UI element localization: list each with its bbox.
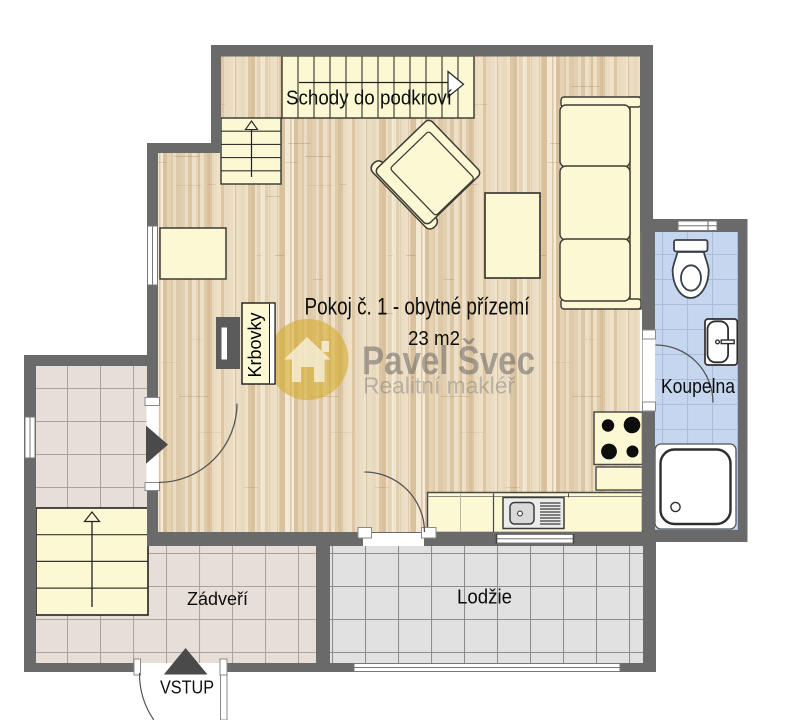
svg-text:Koupelna: Koupelna [661, 376, 736, 398]
svg-text:23 m2: 23 m2 [408, 328, 460, 350]
svg-text:Realitní makléř: Realitní makléř [363, 373, 516, 399]
svg-text:Krbovky: Krbovky [245, 312, 265, 377]
svg-text:Zádveří: Zádveří [187, 588, 249, 609]
svg-text:Pokoj č. 1 - obytné přízemí: Pokoj č. 1 - obytné přízemí [305, 294, 530, 321]
svg-text:Lodžie: Lodžie [457, 587, 512, 609]
svg-text:Schody do podkroví: Schody do podkroví [286, 88, 452, 110]
svg-text:VSTUP: VSTUP [160, 676, 214, 697]
